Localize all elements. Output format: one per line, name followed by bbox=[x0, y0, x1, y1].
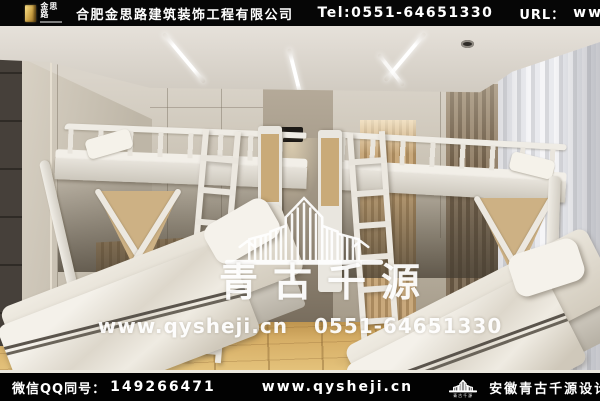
wechat-qq-group: 微信QQ同号： 149266471 bbox=[12, 378, 216, 397]
photo-bottom-divider bbox=[0, 370, 600, 373]
footer-logo-caption: 青古千源 bbox=[453, 394, 473, 398]
header-company-name: 合肥金思路建筑装饰工程有限公司 bbox=[76, 4, 294, 23]
url-value: www.jslu.cn bbox=[573, 5, 600, 21]
qgqy-footer-logo-icon bbox=[449, 376, 477, 393]
watermark-contact: www.qysheji.cn 0551-64651330 bbox=[0, 314, 600, 338]
qgqy-watermark: 青 古 千 源 www.qysheji.cn 0551-64651330 bbox=[0, 26, 600, 373]
jinsilu-logo-icon bbox=[25, 5, 36, 22]
footer-site-url: www.qysheji.cn bbox=[262, 379, 413, 395]
promo-image: 金思路 合肥金思路建筑装饰工程有限公司 Tel:0551-64651330 UR… bbox=[0, 0, 600, 401]
watermark-phone: 0551-64651330 bbox=[314, 314, 502, 338]
header-url: URL： www.jslu.cn bbox=[519, 4, 600, 23]
url-label: URL： bbox=[519, 4, 565, 23]
header-phone: Tel:0551-64651330 bbox=[318, 5, 494, 21]
jinsilu-brand-text: 金思路 bbox=[40, 3, 64, 19]
footer-bar: 微信QQ同号： 149266471 www.qysheji.cn 青古千源 安徽… bbox=[0, 373, 600, 401]
room-render: 青 古 千 源 www.qysheji.cn 0551-64651330 bbox=[0, 26, 600, 373]
qgqy-building-logo-icon bbox=[220, 174, 388, 270]
watermark-site: www.qysheji.cn bbox=[98, 314, 288, 338]
watermark-brand-name: 青 古 千 源 bbox=[219, 264, 420, 303]
qq-number: 149266471 bbox=[110, 379, 216, 395]
footer-company-name: 安徽青古千源设计有限公司 bbox=[489, 378, 600, 397]
header-bar: 金思路 合肥金思路建筑装饰工程有限公司 Tel:0551-64651330 UR… bbox=[0, 0, 600, 26]
qgqy-footer-logo: 青古千源 bbox=[449, 376, 477, 398]
jinsilu-logo: 金思路 bbox=[25, 3, 64, 23]
jinsilu-brand-underline bbox=[40, 21, 62, 23]
qq-label: 微信QQ同号： bbox=[12, 378, 106, 397]
